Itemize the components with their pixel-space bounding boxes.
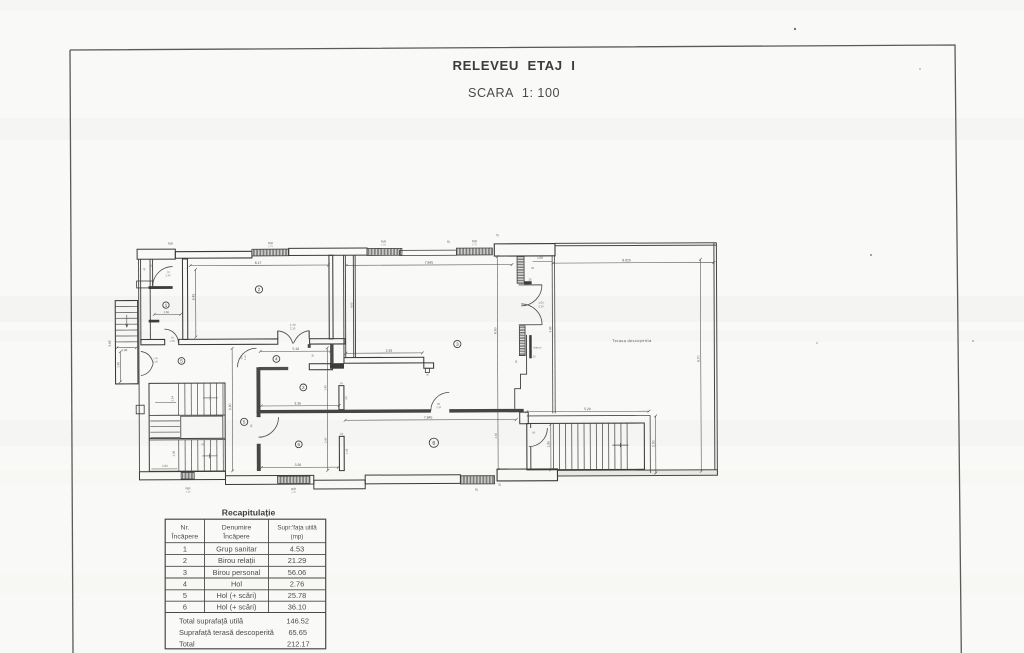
- svg-text:Balcon: Balcon: [533, 345, 542, 349]
- svg-text:S|: S|: [498, 483, 501, 487]
- svg-text:50: 50: [344, 396, 348, 400]
- svg-text:4: 4: [183, 580, 187, 589]
- svg-text:9.70: 9.70: [697, 355, 701, 362]
- svg-text:3.36: 3.36: [294, 402, 301, 406]
- svg-text:Nr.: Nr.: [181, 525, 190, 532]
- svg-text:Hol: Hol: [231, 580, 242, 589]
- svg-text:5.10: 5.10: [293, 347, 300, 351]
- svg-text:Total suprafață utilă: Total suprafață utilă: [179, 617, 244, 626]
- svg-text:Grup sanitar: Grup sanitar: [216, 545, 257, 554]
- svg-text:2: 2: [258, 287, 261, 293]
- svg-text:6.45: 6.45: [191, 294, 195, 301]
- svg-text:2.76: 2.76: [290, 580, 304, 589]
- svg-text:Încăpere: Încăpere: [171, 532, 199, 541]
- svg-text:1.56: 1.56: [163, 310, 169, 314]
- svg-text:3: 3: [183, 568, 187, 577]
- svg-text:2.10: 2.10: [290, 326, 296, 330]
- svg-text:1.52: 1.52: [162, 464, 168, 468]
- svg-text:146.52: 146.52: [286, 617, 309, 626]
- svg-text:6: 6: [183, 603, 187, 612]
- svg-text:2.40: 2.40: [324, 437, 328, 443]
- svg-text:90: 90: [532, 430, 536, 434]
- svg-text:2.00: 2.00: [170, 340, 175, 343]
- svg-text:Terasa descoperita: Terasa descoperita: [612, 338, 652, 343]
- svg-text:8.17: 8.17: [255, 261, 262, 265]
- svg-text:6.60: 6.60: [493, 327, 497, 334]
- svg-text:1.90: 1.90: [547, 441, 551, 448]
- svg-text:R|: R|: [447, 240, 450, 244]
- svg-text:Total: Total: [179, 640, 195, 649]
- svg-text:5: 5: [183, 591, 187, 600]
- svg-text:7.845: 7.845: [425, 261, 434, 265]
- svg-text:1.85: 1.85: [116, 362, 120, 368]
- svg-text:1.10: 1.10: [186, 491, 191, 494]
- svg-text:212.17: 212.17: [287, 640, 310, 649]
- svg-text:2.93: 2.93: [386, 349, 393, 353]
- svg-text:1.40: 1.40: [345, 448, 349, 454]
- svg-text:(mp): (mp): [291, 534, 304, 541]
- svg-text:2.40: 2.40: [494, 432, 498, 438]
- svg-text:3: 3: [456, 342, 459, 348]
- svg-text:R|: R|: [475, 488, 478, 492]
- svg-text:5.90: 5.90: [228, 403, 232, 410]
- svg-text:45: 45: [531, 266, 535, 270]
- svg-text:7.845: 7.845: [424, 416, 433, 420]
- svg-text:SCARA 1: 100: SCARA 1: 100: [468, 86, 560, 100]
- svg-text:16: 16: [340, 432, 344, 436]
- svg-text:6.90: 6.90: [548, 326, 552, 332]
- svg-text:25.78: 25.78: [288, 591, 307, 600]
- svg-text:1.70: 1.70: [381, 244, 386, 247]
- svg-text:25: 25: [529, 278, 533, 282]
- svg-text:8.025: 8.025: [622, 258, 631, 262]
- svg-text:Denumire: Denumire: [222, 525, 252, 532]
- svg-text:65.65: 65.65: [288, 628, 307, 637]
- svg-text:1.00: 1.00: [122, 348, 128, 352]
- svg-text:Încăpere: Încăpere: [222, 532, 250, 541]
- svg-text:1.06: 1.06: [537, 256, 543, 260]
- svg-text:R|R: R|R: [168, 242, 174, 246]
- svg-text:1.50: 1.50: [538, 301, 544, 305]
- svg-text:4.80: 4.80: [350, 302, 354, 308]
- svg-text:1.45: 1.45: [323, 385, 327, 391]
- svg-text:56.06: 56.06: [288, 568, 307, 577]
- svg-text:3.85: 3.85: [108, 340, 112, 346]
- svg-text:Hol (+ scări): Hol (+ scări): [216, 603, 256, 612]
- svg-text:36.10: 36.10: [288, 603, 307, 612]
- svg-text:4.53: 4.53: [290, 545, 304, 554]
- svg-text:1: 1: [183, 545, 187, 554]
- svg-text:2.10: 2.10: [244, 355, 247, 360]
- svg-text:6: 6: [432, 441, 435, 447]
- svg-text:1.70: 1.70: [268, 245, 273, 248]
- svg-text:Birou personal: Birou personal: [213, 568, 261, 577]
- svg-text:Hol (+ scări): Hol (+ scări): [216, 591, 256, 600]
- svg-text:Birou relații: Birou relații: [218, 556, 255, 565]
- svg-text:2.00: 2.00: [166, 274, 171, 277]
- svg-text:5: 5: [243, 420, 246, 425]
- svg-text:Supr:'fața utilă: Supr:'fața utilă: [277, 525, 317, 532]
- svg-text:16: 16: [340, 381, 344, 385]
- svg-text:1.34: 1.34: [170, 396, 174, 402]
- svg-text:2.10: 2.10: [436, 406, 441, 409]
- svg-text:1.70: 1.70: [472, 243, 477, 246]
- svg-text:2.10: 2.10: [538, 304, 544, 308]
- svg-text:1.70: 1.70: [291, 491, 296, 494]
- svg-text:2.90: 2.90: [652, 440, 656, 447]
- svg-text:S|: S|: [496, 233, 499, 237]
- svg-text:5.20: 5.20: [584, 407, 591, 411]
- svg-text:21.29: 21.29: [288, 556, 307, 565]
- svg-text:Recapitulație: Recapitulație: [222, 508, 276, 518]
- svg-text:3.36: 3.36: [295, 463, 302, 467]
- svg-text:1.40: 1.40: [172, 450, 176, 456]
- svg-text:2: 2: [183, 556, 187, 565]
- svg-text:RELEVEU ETAJ I: RELEVEU ETAJ I: [453, 58, 576, 73]
- svg-text:Suprafață terasă descoperită: Suprafață terasă descoperită: [179, 628, 275, 637]
- svg-text:2.05: 2.05: [153, 361, 158, 364]
